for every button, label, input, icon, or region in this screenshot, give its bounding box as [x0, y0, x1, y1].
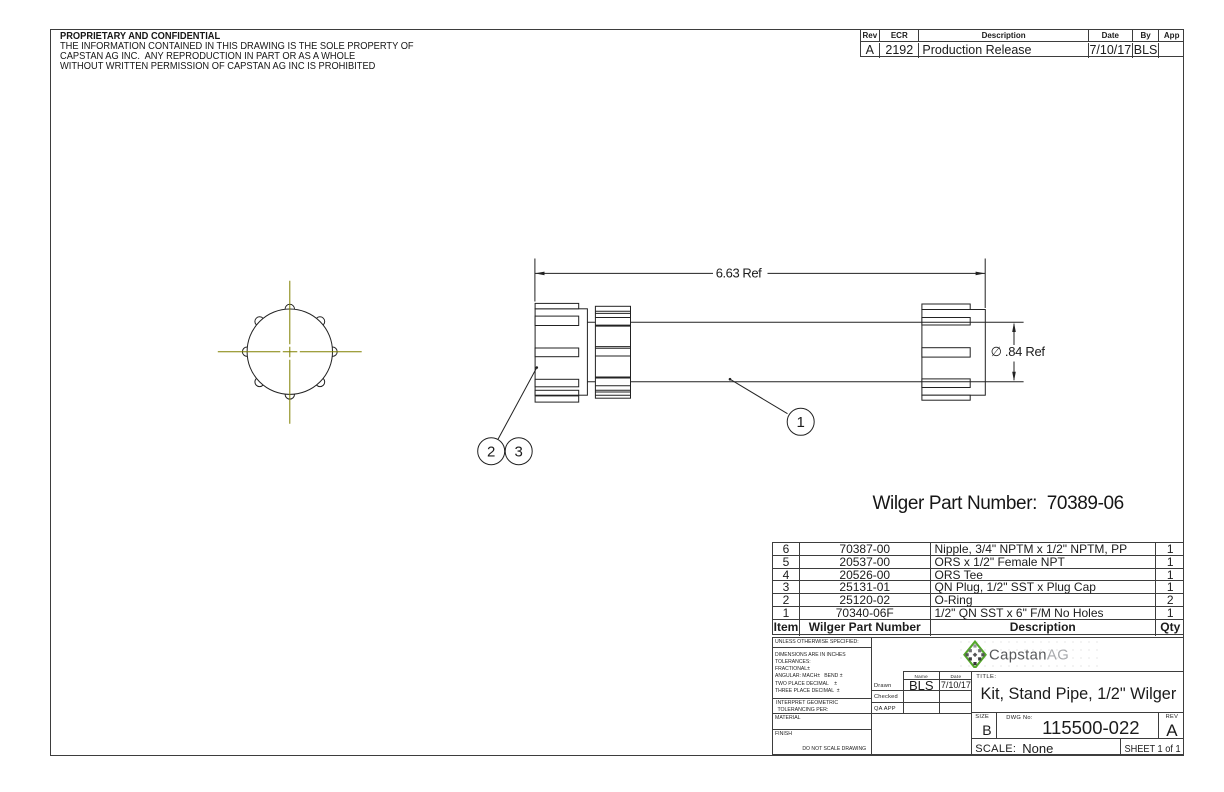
svg-text:3: 3: [515, 444, 523, 461]
svg-text:CapstanAG: CapstanAG: [989, 647, 1069, 663]
svg-text:∅ .84 Ref: ∅ .84 Ref: [991, 344, 1046, 359]
svg-text:6.63 Ref: 6.63 Ref: [716, 266, 762, 281]
svg-text:1: 1: [797, 414, 805, 431]
svg-text:2: 2: [487, 444, 495, 461]
